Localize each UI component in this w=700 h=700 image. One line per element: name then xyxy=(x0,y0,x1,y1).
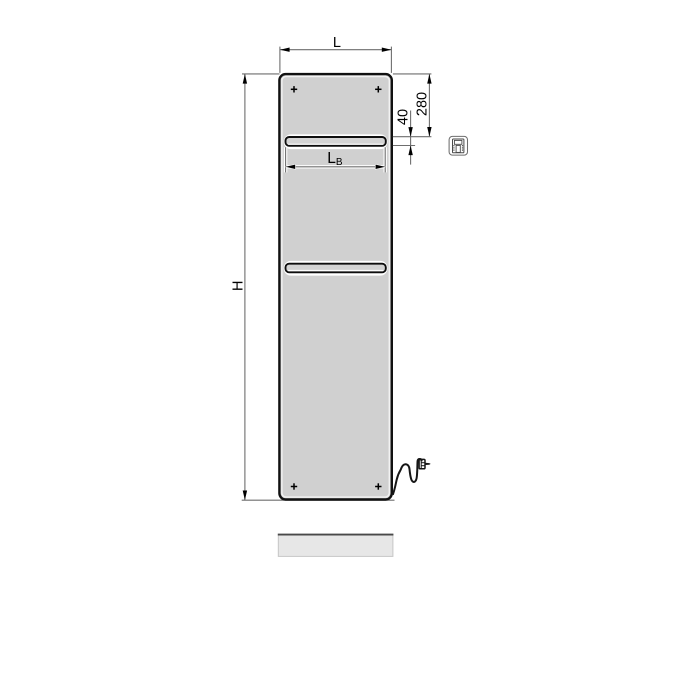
svg-text:H: H xyxy=(230,281,246,291)
svg-text:280: 280 xyxy=(415,92,431,116)
svg-text:40: 40 xyxy=(396,109,412,125)
svg-text:L: L xyxy=(333,35,341,51)
